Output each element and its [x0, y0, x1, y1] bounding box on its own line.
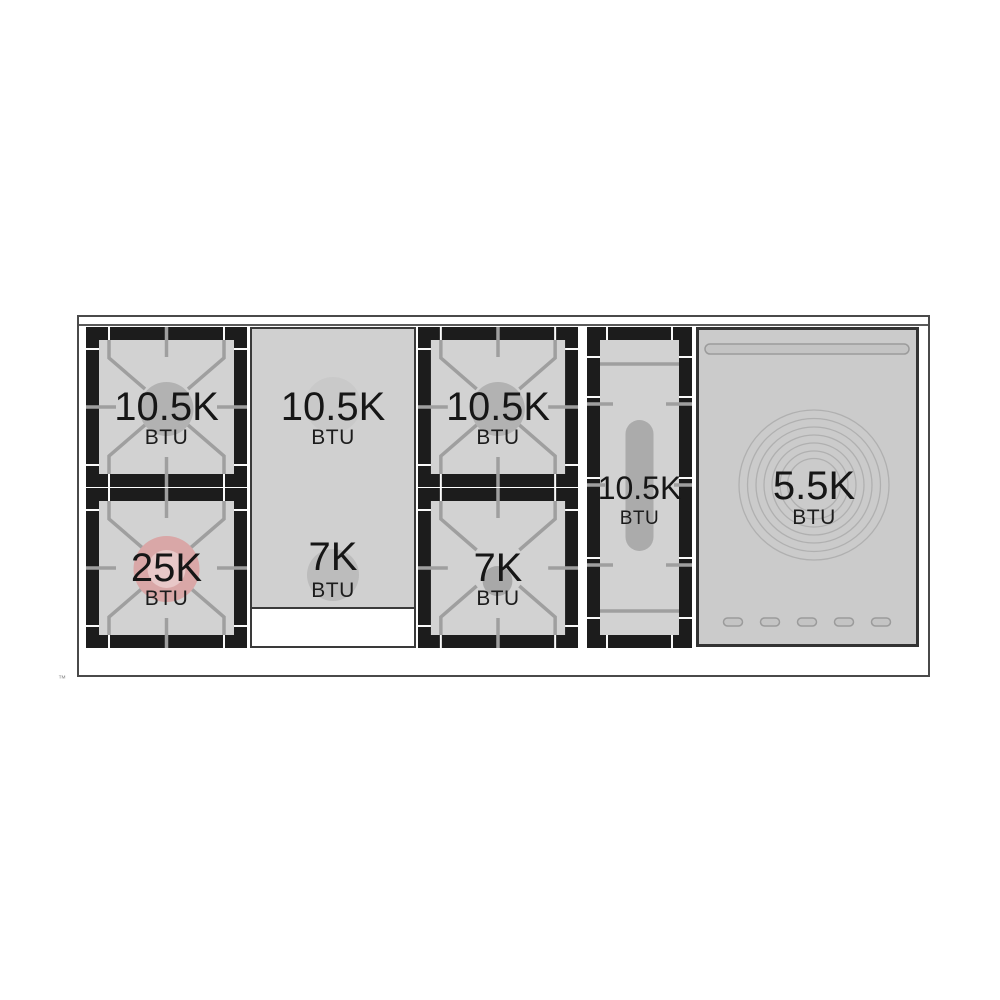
griddle-surface: 10.5K BTU 7K BTU — [252, 329, 414, 607]
warming-unit-label: BTU — [792, 506, 836, 529]
burner-unit-label: BTU — [476, 426, 519, 449]
burner-grate-top-center: 10.5K BTU — [418, 327, 578, 487]
center-burner-column: 10.5K BTU 7K BTU — [418, 327, 578, 648]
burner-grate-bottom-left: 25K BTU — [86, 488, 247, 648]
griddle-zone: 10.5K BTU 7K BTU — [250, 327, 416, 648]
cooktop-back-trim — [79, 324, 928, 326]
control-button — [798, 618, 817, 626]
burner-unit-label: BTU — [620, 508, 660, 529]
burner-power-label: 10.5K — [446, 385, 550, 429]
burner-grate-top-left: 10.5K BTU — [86, 327, 247, 487]
cooktop-diagram: 10.5K BTU 25K BTU 10.5K BTU 7K BTU — [77, 315, 930, 677]
warming-plate: 5.5K BTU — [696, 327, 919, 647]
warming-power-label: 5.5K — [773, 464, 856, 508]
control-button — [872, 618, 891, 626]
burner-power-label: 25K — [131, 546, 202, 590]
griddle-rear-power-label: 10.5K — [281, 385, 386, 429]
oval-burner-section: 10.5K BTU — [587, 327, 692, 648]
warming-plate-slot — [705, 344, 909, 354]
trademark-mark: ™ — [58, 674, 66, 683]
control-button — [835, 618, 854, 626]
burner-grate-bottom-center: 7K BTU — [418, 488, 578, 648]
burner-power-label: 10.5K — [114, 385, 219, 429]
griddle-front-unit-label: BTU — [311, 579, 355, 602]
oval-burner-grate: 10.5K BTU — [587, 327, 692, 648]
burner-unit-label: BTU — [145, 587, 189, 610]
control-button — [761, 618, 780, 626]
griddle-front-ledge — [252, 607, 414, 646]
burner-power-label: 10.5K — [598, 470, 682, 506]
griddle-front-power-label: 7K — [309, 535, 358, 579]
burner-unit-label: BTU — [145, 426, 189, 449]
warming-zone-section: 5.5K BTU — [696, 327, 919, 647]
control-button — [724, 618, 743, 626]
left-burner-column: 10.5K BTU 25K BTU — [86, 327, 247, 648]
griddle-rear-unit-label: BTU — [311, 426, 355, 449]
burner-power-label: 7K — [474, 546, 523, 590]
burner-unit-label: BTU — [476, 587, 519, 610]
